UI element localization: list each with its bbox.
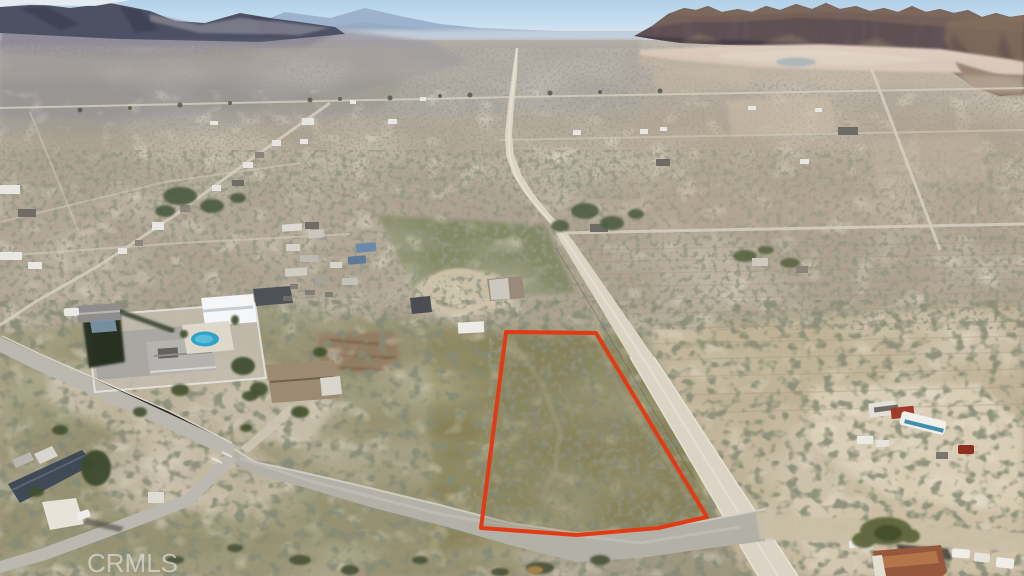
svg-text:CRMLS: CRMLS bbox=[87, 548, 178, 576]
